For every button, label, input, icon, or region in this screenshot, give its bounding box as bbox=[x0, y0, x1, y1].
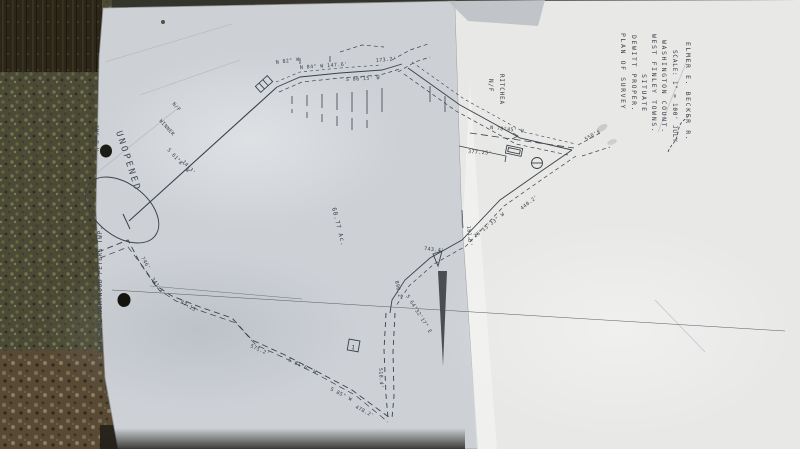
tree-bark bbox=[0, 0, 102, 72]
owner-ritchea-prefix: N/F bbox=[487, 79, 494, 92]
photo-of-survey-plan: PLAN OF SURVEY DEWITT PROPER. SITUATE WE… bbox=[0, 0, 800, 449]
title-line: WASHINGTON COUNT. bbox=[660, 40, 668, 134]
fax-header-id: ING P.U bbox=[93, 125, 99, 152]
paper-bottom-shadow bbox=[100, 428, 465, 449]
recorder-stamp: 41246234Z NORTWOOD PETERS TWP. bbox=[97, 226, 104, 358]
title-line: SCALE: 1" = 100' JULY bbox=[671, 50, 678, 143]
paper-crumple-shade bbox=[40, 250, 360, 410]
owner-ritchea-name: RITCHEA bbox=[498, 74, 505, 105]
title-line: DEWITT PROPER. bbox=[630, 35, 638, 112]
punch-hole-2 bbox=[118, 293, 131, 307]
title-line: PLAN OF SURVEY bbox=[619, 33, 627, 110]
bearing-label: 510.4' bbox=[377, 368, 384, 389]
punch-hole-1 bbox=[100, 145, 112, 158]
paper-crumple-light2 bbox=[440, 220, 800, 440]
dirt-speck bbox=[161, 20, 165, 24]
title-line: SITUATE bbox=[640, 74, 648, 113]
fax-header-date: JUL 21 bbox=[88, 82, 94, 105]
title-line: WEST FINLEY TOWNS. bbox=[650, 34, 658, 133]
title-line: ELMER E. BECKER R. bbox=[684, 42, 692, 141]
